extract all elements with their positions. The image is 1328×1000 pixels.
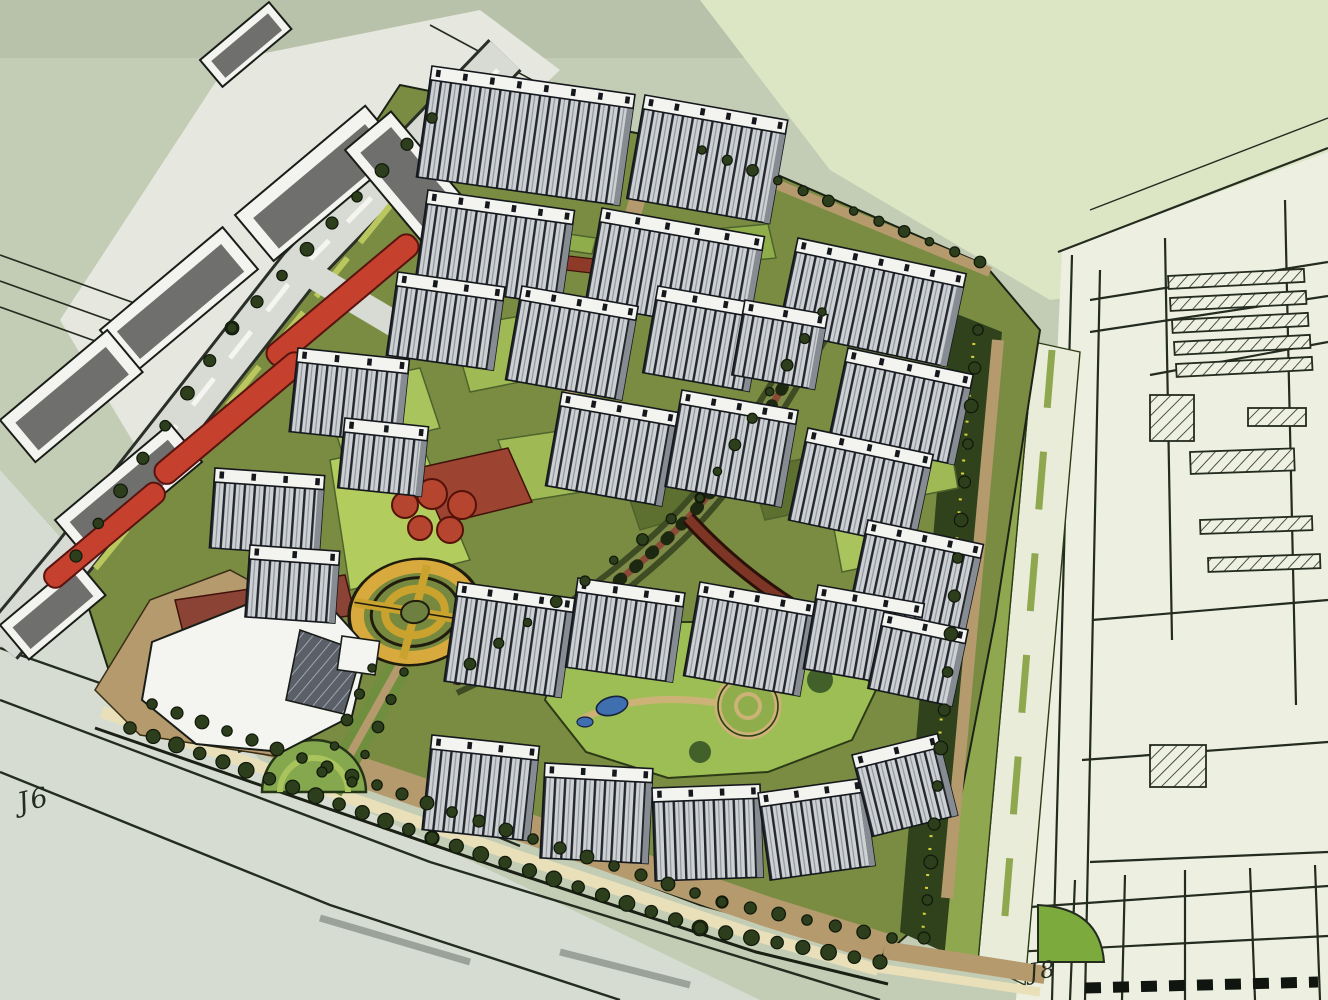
tree [800, 334, 810, 344]
tree [499, 856, 511, 868]
tree [898, 226, 910, 238]
tower-slab [245, 545, 340, 623]
tree [146, 729, 160, 743]
tree [953, 553, 963, 563]
tree [796, 940, 810, 954]
tree [821, 944, 837, 960]
tree [580, 850, 594, 864]
tower-slab [546, 392, 679, 506]
tree [948, 590, 960, 602]
tree [204, 355, 216, 367]
tree [317, 767, 327, 777]
tower-slab [506, 286, 639, 400]
tree [619, 896, 635, 912]
tower-slab [684, 582, 817, 696]
tree [464, 658, 476, 670]
tree [169, 737, 185, 753]
tree [352, 192, 362, 202]
tower-slab [565, 578, 684, 682]
tree [802, 915, 812, 925]
tree [942, 667, 952, 677]
tree [818, 308, 826, 316]
tree [330, 742, 338, 750]
tree [963, 439, 973, 449]
tree [270, 742, 284, 756]
architectural-rendering: J6 J8 [0, 0, 1328, 1000]
tree [781, 359, 793, 371]
tree [403, 823, 415, 835]
tree [874, 216, 884, 226]
tree [713, 467, 721, 475]
tree [216, 755, 230, 769]
tree [550, 596, 562, 608]
tree [124, 722, 136, 734]
tree [494, 638, 504, 648]
tree [747, 165, 759, 177]
tree [401, 138, 413, 150]
tree [93, 518, 103, 528]
tower-slab [758, 778, 875, 880]
tree [969, 362, 981, 374]
tree [426, 832, 438, 844]
tree [427, 113, 437, 123]
tree [744, 930, 760, 946]
tree [747, 413, 757, 423]
tree [449, 839, 463, 853]
tree [333, 798, 345, 810]
tree [928, 818, 940, 830]
tree [973, 325, 983, 335]
tree [609, 861, 619, 871]
tree [918, 932, 930, 944]
tree [368, 664, 376, 672]
tree [669, 913, 683, 927]
sketch-dash-row [1085, 982, 1318, 988]
tower-slab [732, 300, 828, 389]
tree [964, 399, 978, 413]
tree [772, 907, 786, 921]
tree [114, 484, 128, 498]
tree [375, 164, 389, 178]
tree [848, 951, 860, 963]
tree [950, 247, 960, 257]
tree [637, 534, 649, 546]
tree [934, 741, 948, 755]
tree [361, 750, 369, 758]
tree [297, 753, 307, 763]
tree [396, 788, 408, 800]
tree [829, 920, 841, 932]
tree [938, 704, 950, 716]
tree [355, 689, 365, 699]
tree [857, 925, 871, 939]
tree [887, 933, 897, 943]
tree [717, 897, 727, 907]
tree [554, 842, 566, 854]
tree [160, 421, 170, 431]
tree [372, 780, 382, 790]
tree [251, 296, 263, 308]
tree [823, 195, 835, 207]
tree [698, 146, 706, 154]
tower-slab [338, 418, 429, 496]
tree [523, 618, 531, 626]
tree [729, 439, 741, 451]
tree [300, 242, 314, 256]
tower-slab [386, 272, 505, 370]
tree [580, 576, 590, 586]
tree [447, 807, 457, 817]
tree [420, 796, 434, 810]
tree [974, 256, 986, 268]
tree [473, 847, 489, 863]
tree [286, 780, 300, 794]
tree [263, 773, 275, 785]
tree [572, 881, 584, 893]
tree [193, 747, 205, 759]
tree [922, 895, 932, 905]
tree [722, 155, 732, 165]
tree [666, 514, 676, 524]
tree [147, 699, 157, 709]
tree [70, 550, 82, 562]
tree [195, 715, 209, 729]
tower-slab [209, 468, 324, 555]
masterplan-aerial-view: J6 J8 [0, 0, 1328, 1000]
tree [227, 323, 237, 333]
tree [277, 270, 287, 280]
tree [924, 855, 938, 869]
tower-slab [868, 612, 968, 706]
tree [378, 813, 394, 829]
tree [171, 707, 183, 719]
tree [347, 777, 357, 787]
tree [696, 494, 704, 502]
tree [798, 186, 808, 196]
tree [873, 955, 887, 969]
tree [849, 207, 857, 215]
tree [690, 888, 700, 898]
tree [499, 823, 513, 837]
tree [744, 902, 756, 914]
tree [400, 668, 408, 676]
tree [635, 869, 647, 881]
tree [222, 726, 232, 736]
tree [473, 815, 485, 827]
tree [959, 476, 971, 488]
tree [766, 388, 774, 396]
tree [137, 452, 149, 464]
tree [954, 513, 968, 527]
tree [925, 237, 933, 245]
tree [944, 627, 958, 641]
tree [774, 176, 782, 184]
tree [661, 877, 675, 891]
tree [528, 834, 538, 844]
tree [596, 888, 610, 902]
tree [181, 386, 195, 400]
tree [610, 556, 618, 564]
tree [246, 734, 258, 746]
tree [932, 781, 942, 791]
tree [386, 695, 396, 705]
tree [719, 926, 733, 940]
tree [645, 905, 657, 917]
tree [694, 922, 706, 934]
tree [308, 788, 324, 804]
tree [341, 714, 353, 726]
tree [771, 936, 783, 948]
tree [522, 864, 536, 878]
tree [238, 763, 254, 779]
tree [372, 721, 384, 733]
tree [355, 806, 369, 820]
tree [546, 871, 562, 887]
tree [326, 217, 338, 229]
tower-slab [652, 784, 763, 881]
